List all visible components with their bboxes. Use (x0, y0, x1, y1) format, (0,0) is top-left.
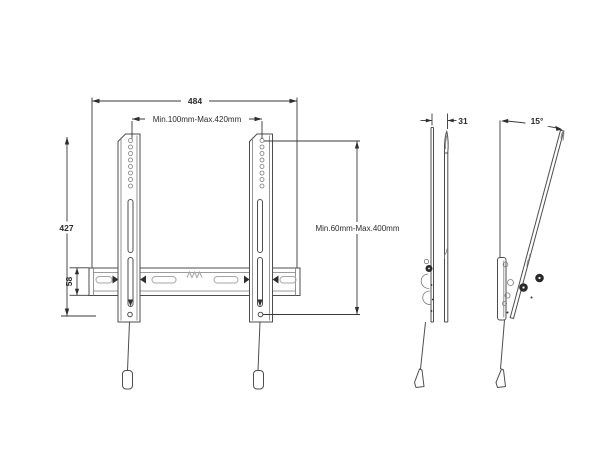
arm-profile (444, 132, 448, 323)
dim-depth-label: 31 (458, 116, 468, 126)
cord-pull (415, 369, 425, 388)
dim-rail-height-label: 58 (64, 277, 74, 287)
front-view: 484 Min.100mm-Max.420mm 427 (52, 95, 401, 390)
arm-profile-tilted (510, 130, 564, 318)
wall-plate-profile (431, 128, 434, 323)
dim-vesa-width-label: Min.100mm-Max.420mm (153, 115, 242, 124)
left-arm (118, 134, 140, 389)
dim-vesa-height: Min.60mm-Max.400mm (263, 141, 401, 315)
drawing-canvas: 484 Min.100mm-Max.420mm 427 (0, 0, 610, 450)
right-arm (250, 134, 273, 389)
pull-cord (501, 320, 505, 369)
dim-height-total-label: 427 (59, 223, 73, 233)
level-mark-icon (187, 272, 202, 278)
pull-cord (128, 322, 130, 371)
dim-tilt-angle-label: 15° (531, 116, 544, 126)
pull-cord (421, 322, 426, 369)
dim-vesa-width: Min.100mm-Max.420mm (132, 113, 262, 139)
pull-cord (258, 322, 260, 371)
dim-width-total-label: 484 (188, 96, 202, 106)
dim-depth: 31 (421, 114, 468, 130)
side-view: 31 (415, 114, 468, 388)
dim-tilt-angle: 15° (501, 115, 563, 131)
tilt-view: 15° (496, 115, 564, 388)
dimension-drawing: 484 Min.100mm-Max.420mm 427 (0, 0, 610, 450)
tilt-latch-mechanism (421, 259, 433, 312)
dim-vesa-height-label: Min.60mm-Max.400mm (315, 224, 399, 233)
cord-pull (254, 371, 264, 390)
dim-rail-height: 58 (64, 268, 89, 296)
cord-pull (123, 371, 133, 390)
cord-pull (496, 369, 506, 388)
